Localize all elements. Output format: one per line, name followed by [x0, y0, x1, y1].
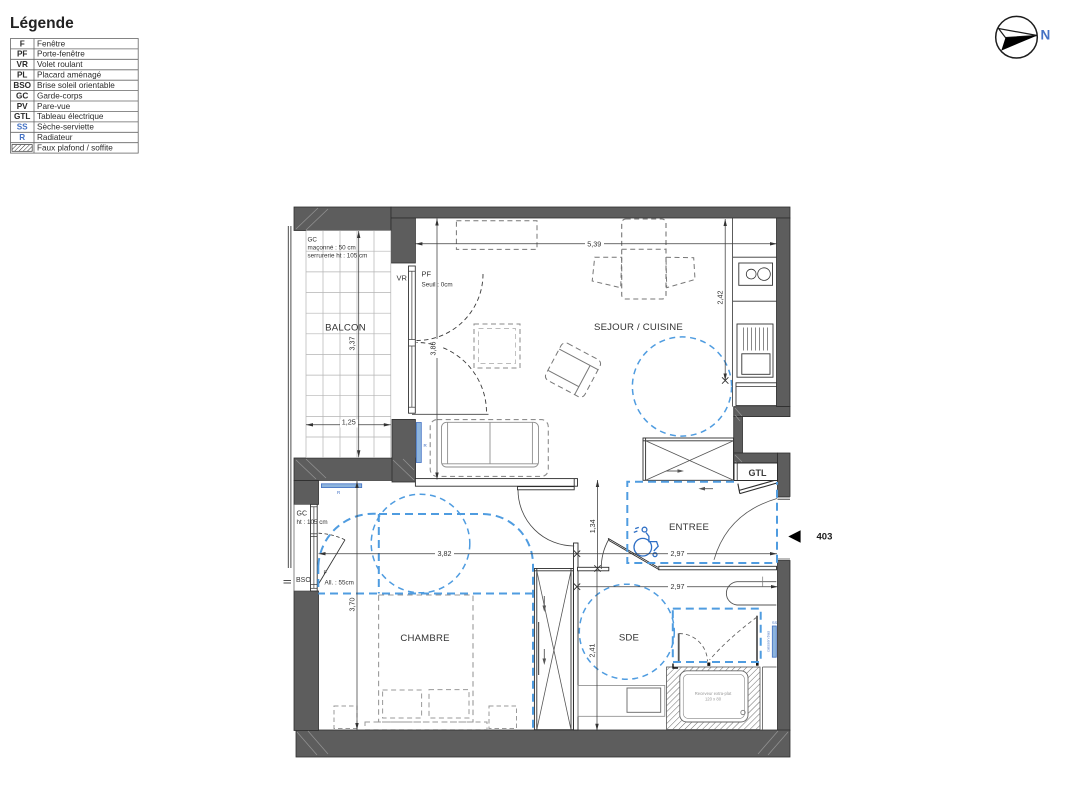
svg-text:All. : 55cm: All. : 55cm	[325, 580, 354, 587]
svg-text:1,25: 1,25	[342, 418, 356, 427]
svg-text:ENTREE: ENTREE	[669, 522, 709, 533]
svg-text:Brise soleil orientable: Brise soleil orientable	[37, 81, 115, 90]
svg-text:3,82: 3,82	[438, 549, 452, 558]
svg-text:PL: PL	[17, 71, 27, 80]
svg-text:GC: GC	[297, 511, 308, 518]
svg-text:Pare-vue: Pare-vue	[37, 102, 71, 111]
svg-text:N: N	[1041, 28, 1051, 43]
svg-text:3,70: 3,70	[347, 598, 356, 612]
svg-text:2,42: 2,42	[716, 291, 725, 305]
svg-text:1,34: 1,34	[588, 519, 597, 533]
svg-text:SS: SS	[772, 620, 778, 625]
svg-text:3,37: 3,37	[348, 337, 357, 351]
svg-text:BSO: BSO	[13, 81, 31, 90]
svg-text:BSO: BSO	[296, 577, 311, 584]
svg-text:Radiateur: Radiateur	[37, 133, 73, 142]
svg-text:Garde-corps: Garde-corps	[37, 91, 83, 100]
svg-text:F: F	[20, 39, 25, 48]
svg-text:ht : 105 cm: ht : 105 cm	[297, 519, 328, 526]
svg-text:Porte-fenêtre: Porte-fenêtre	[37, 50, 85, 59]
svg-text:Sèche-serviette: Sèche-serviette	[37, 123, 94, 132]
svg-text:Faux plafond / soffite: Faux plafond / soffite	[37, 144, 113, 153]
svg-text:VR: VR	[397, 274, 408, 283]
svg-text:Receveur extra-plat: Receveur extra-plat	[695, 691, 732, 696]
svg-text:120 x 80: 120 x 80	[705, 697, 722, 702]
svg-text:2,97: 2,97	[671, 549, 685, 558]
svg-text:caisson bas: caisson bas	[766, 631, 771, 652]
svg-text:CHAMBRE: CHAMBRE	[400, 633, 449, 644]
svg-text:BALCON: BALCON	[325, 323, 366, 334]
svg-text:Tableau électrique: Tableau électrique	[37, 112, 104, 121]
svg-text:5,39: 5,39	[587, 239, 601, 248]
svg-text:Volet roulant: Volet roulant	[37, 60, 83, 69]
svg-text:maçonné : 50 cm: maçonné : 50 cm	[308, 245, 356, 252]
svg-text:2,97: 2,97	[671, 582, 685, 591]
svg-text:GC: GC	[16, 91, 28, 100]
svg-text:Fenêtre: Fenêtre	[37, 39, 66, 48]
svg-text:PF: PF	[17, 50, 27, 59]
svg-text:403: 403	[817, 532, 833, 543]
svg-text:SS: SS	[17, 123, 28, 132]
svg-text:PF: PF	[422, 270, 432, 279]
svg-text:SEJOUR / CUISINE: SEJOUR / CUISINE	[594, 322, 683, 333]
svg-text:Placard aménagé: Placard aménagé	[37, 71, 102, 80]
svg-text:3,86: 3,86	[429, 342, 438, 356]
svg-text:PV: PV	[17, 102, 28, 111]
svg-text:GC: GC	[308, 237, 318, 244]
svg-text:2,41: 2,41	[587, 644, 596, 658]
svg-text:VR: VR	[17, 60, 28, 69]
svg-text:Légende: Légende	[10, 15, 74, 32]
svg-text:GTL: GTL	[14, 112, 30, 121]
svg-text:GTL: GTL	[749, 468, 767, 478]
svg-text:R: R	[19, 133, 25, 142]
svg-text:SDE: SDE	[619, 633, 639, 644]
